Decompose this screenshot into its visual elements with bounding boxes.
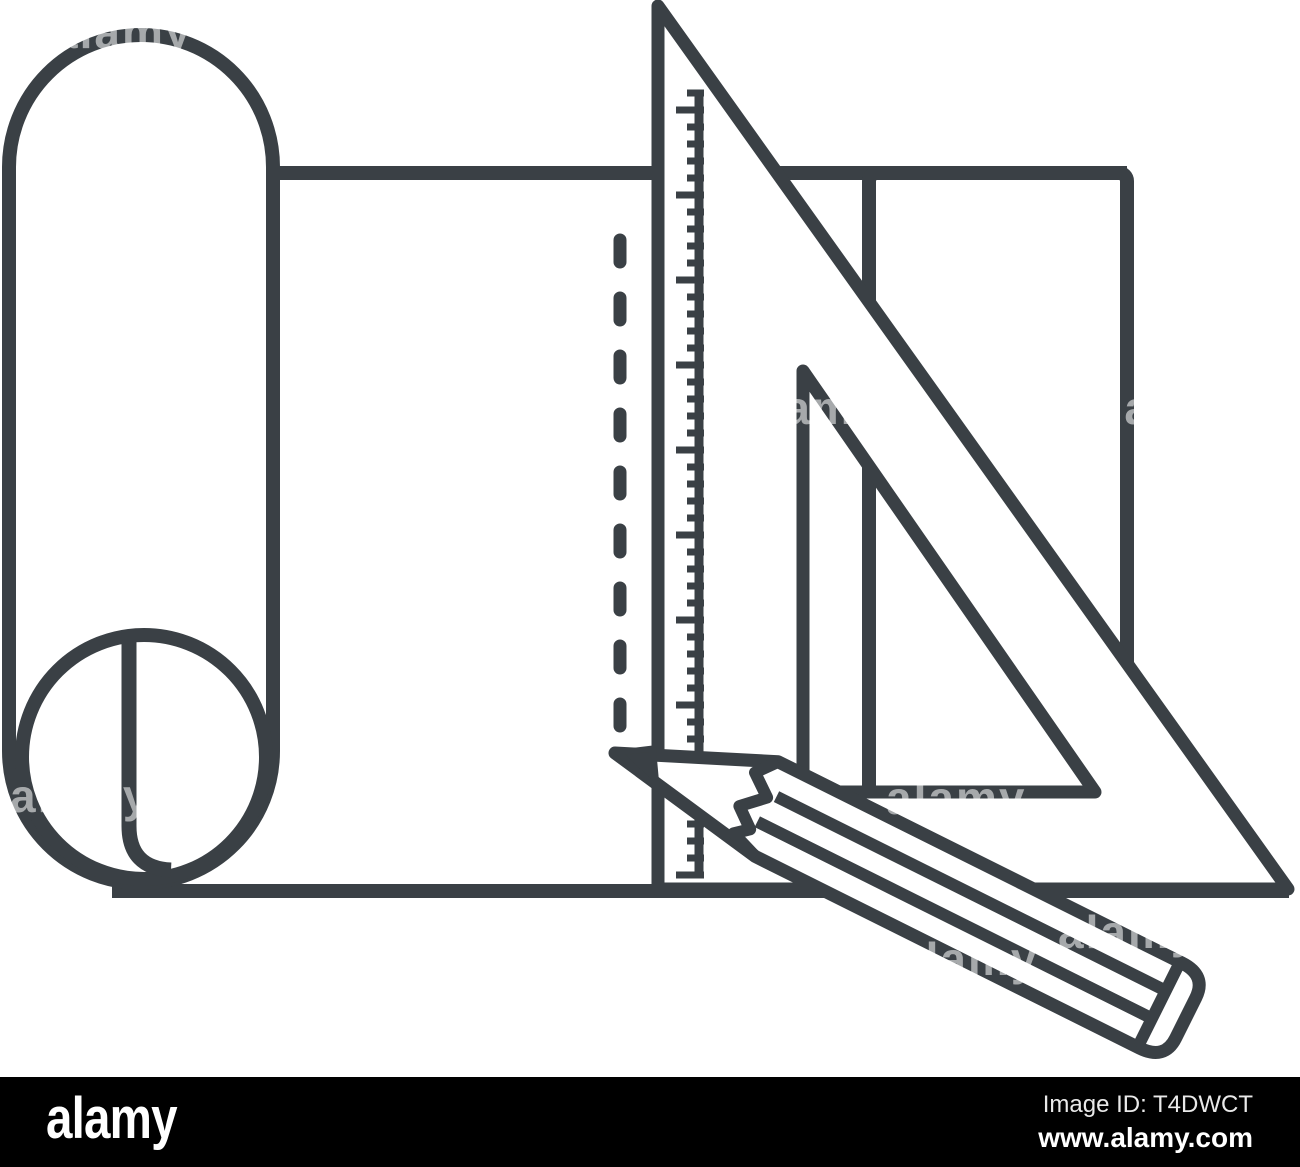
watermark-ghost-text: alamy	[886, 772, 1026, 824]
image-id-text: Image ID: T4DWCT	[1038, 1091, 1253, 1119]
watermark-ghost-text: alamy	[52, 6, 192, 58]
watermark-footer-bar: alamy Image ID: T4DWCT www.alamy.com	[0, 1077, 1300, 1167]
watermark-ghost-text: alamy	[898, 933, 1038, 985]
alamy-website-text: www.alamy.com	[1038, 1122, 1253, 1154]
watermark-ghost-text: alamy	[10, 770, 150, 822]
watermark-ghost-text: alamy	[1058, 906, 1198, 958]
drafting-tools-illustration: alamyalamyalamyalamyalamyalamyalamy	[0, 0, 1300, 1167]
paper-roll	[9, 35, 273, 883]
stock-image-page: alamyalamyalamyalamyalamyalamyalamy alam…	[0, 0, 1300, 1167]
alamy-logo: alamy	[46, 1090, 177, 1148]
watermark-ghost-text: alamy	[742, 382, 882, 434]
footer-right-block: Image ID: T4DWCT www.alamy.com	[1038, 1091, 1253, 1154]
image-id-label: Image ID:	[1043, 1091, 1147, 1118]
watermark-ghost-text: alamy	[1082, 382, 1222, 434]
image-id-value: T4DWCT	[1153, 1091, 1253, 1118]
paper-roll-end-circle	[22, 635, 266, 879]
